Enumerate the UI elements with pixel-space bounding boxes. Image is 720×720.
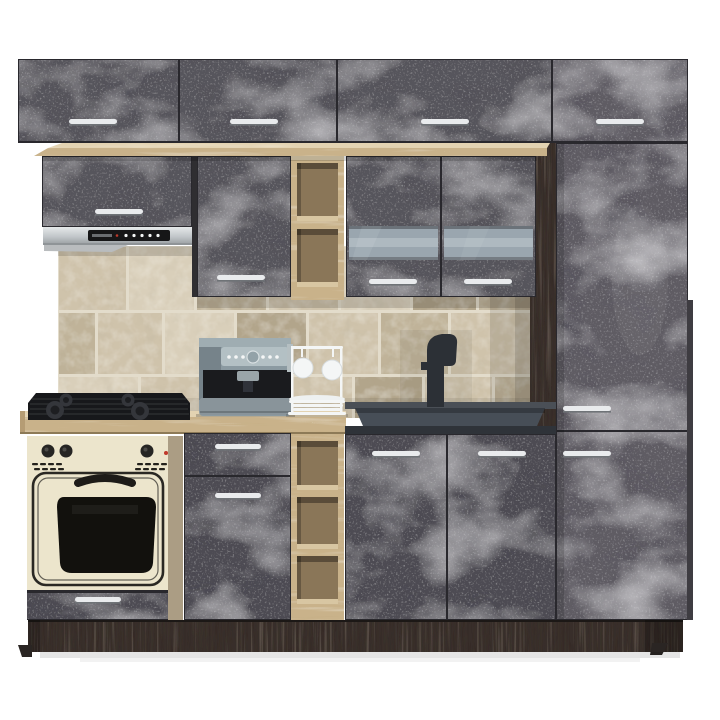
- door-handle: [563, 451, 611, 456]
- cabinet-door: [557, 432, 687, 619]
- portafilter: [243, 381, 253, 392]
- mug-stand-base: [288, 412, 346, 415]
- mug: [293, 358, 313, 378]
- door-handle: [69, 119, 117, 124]
- tall-cabinet-side: [687, 300, 693, 620]
- mug-stand-top-bar: [291, 346, 343, 349]
- hood-cabinet: [42, 156, 192, 227]
- shelf-niche: [297, 556, 338, 604]
- coffee-machine: [196, 338, 295, 417]
- hood-display: [92, 234, 112, 237]
- door-handle: [596, 119, 644, 124]
- door-handle: [95, 209, 143, 214]
- plate: [289, 400, 345, 403]
- wall-cabinet-mid: [197, 156, 291, 297]
- cabinet-door: [346, 435, 446, 619]
- door-handle: [478, 451, 526, 456]
- door-handle: [217, 275, 265, 280]
- door-handle: [369, 279, 417, 284]
- cabinet-door: [19, 60, 178, 141]
- shelf-niche: [297, 497, 338, 549]
- oven-unit: [27, 436, 183, 620]
- sink-counter-front: [345, 426, 556, 434]
- oven-bottom-drawer: [27, 593, 168, 619]
- cabinet-door: [43, 157, 191, 226]
- board-shadow: [42, 156, 537, 161]
- floor-shadow: [40, 652, 680, 658]
- cabinet-door: [180, 60, 336, 141]
- open-shelf-lower: [291, 434, 344, 620]
- cabinet-door: [553, 60, 687, 141]
- door-handle: [421, 119, 469, 124]
- glass-cabinet: [346, 156, 536, 297]
- coffee-machine-dial: [247, 351, 259, 363]
- door-handle: [464, 279, 512, 284]
- cabinet-door: [338, 60, 551, 141]
- sink-counter-rim: [345, 402, 556, 409]
- door-handle: [75, 597, 121, 602]
- door-handle: [372, 451, 420, 456]
- shelf-niche: [297, 163, 338, 221]
- kitchen-product-photo: [0, 0, 720, 720]
- door-handle: [230, 119, 278, 124]
- cabinet-side-gap: [192, 156, 197, 297]
- mug: [322, 360, 342, 380]
- plinth: [18, 620, 683, 657]
- plate: [293, 408, 341, 411]
- drawer-front: [185, 434, 290, 475]
- cabinet-door: [448, 435, 555, 619]
- plate: [291, 404, 343, 407]
- door-handle: [215, 493, 261, 498]
- tall-cabinet: [556, 143, 693, 620]
- door-handle: [563, 406, 611, 411]
- shelf-niche: [297, 229, 338, 287]
- open-shelf-upper: [291, 156, 344, 300]
- sink-cabinet: [345, 434, 556, 620]
- kitchen-scene: [0, 0, 720, 720]
- hood-indicator-light: [116, 234, 119, 237]
- oak-shelf-board: [34, 143, 550, 156]
- top-cabinet-row: [18, 59, 688, 143]
- gas-hob: [28, 393, 190, 420]
- shelf-niche: [297, 441, 338, 490]
- base-cabinet-drawer-unit: [184, 433, 291, 620]
- shadow-under-wall-cabinets: [197, 297, 537, 308]
- oven-side-filler: [168, 436, 183, 620]
- oven-indicator-light: [164, 451, 168, 455]
- drawer-handle: [215, 444, 261, 449]
